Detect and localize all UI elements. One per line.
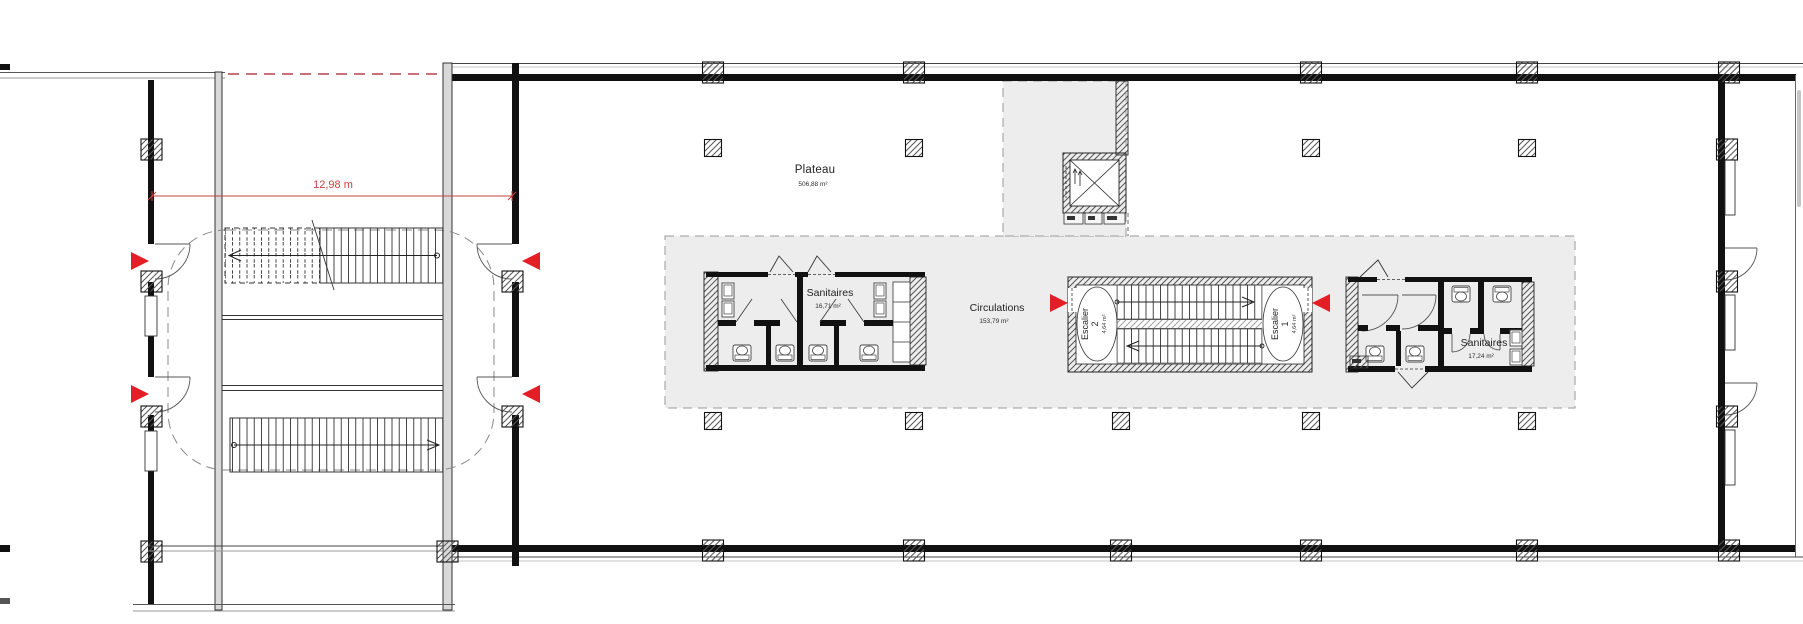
escalier-2-area: 4,64 m² bbox=[1102, 311, 1108, 336]
area-label-sanitaires-east: 17,24 m² bbox=[1468, 352, 1494, 359]
room-label-circulations: Circulations bbox=[970, 302, 1025, 314]
escalier-1-name: Escalier 1 bbox=[1271, 306, 1290, 342]
room-label-escalier-1: Escalier 1 4,64 m² bbox=[1271, 306, 1299, 342]
room-label-sanitaires-west: Sanitaires bbox=[807, 287, 854, 299]
floor-plan-drawing bbox=[0, 0, 1803, 624]
room-label-sanitaires-east: Sanitaires bbox=[1461, 337, 1508, 349]
lower-stair bbox=[230, 418, 443, 472]
floor-plan-canvas: Plateau 506,88 m² Sanitaires 16,71 m² Ci… bbox=[0, 0, 1803, 624]
dimension-label: 12,98 m bbox=[313, 179, 353, 191]
escalier-1-area: 4,64 m² bbox=[1292, 311, 1298, 336]
dimension-line bbox=[148, 191, 516, 201]
area-label-circulations: 153,79 m² bbox=[979, 317, 1008, 324]
vertical-scrollbar-thumb[interactable] bbox=[1797, 90, 1801, 207]
room-label-plateau: Plateau bbox=[795, 164, 835, 176]
area-label-sanitaires-west: 16,71 m² bbox=[815, 302, 841, 309]
upper-stair bbox=[225, 220, 443, 290]
escalier-2-name: Escalier 2 bbox=[1081, 306, 1100, 342]
room-label-escalier-2: Escalier 2 4,64 m² bbox=[1081, 306, 1109, 342]
left-wing bbox=[0, 63, 512, 611]
area-label-plateau: 506,88 m² bbox=[798, 180, 827, 187]
